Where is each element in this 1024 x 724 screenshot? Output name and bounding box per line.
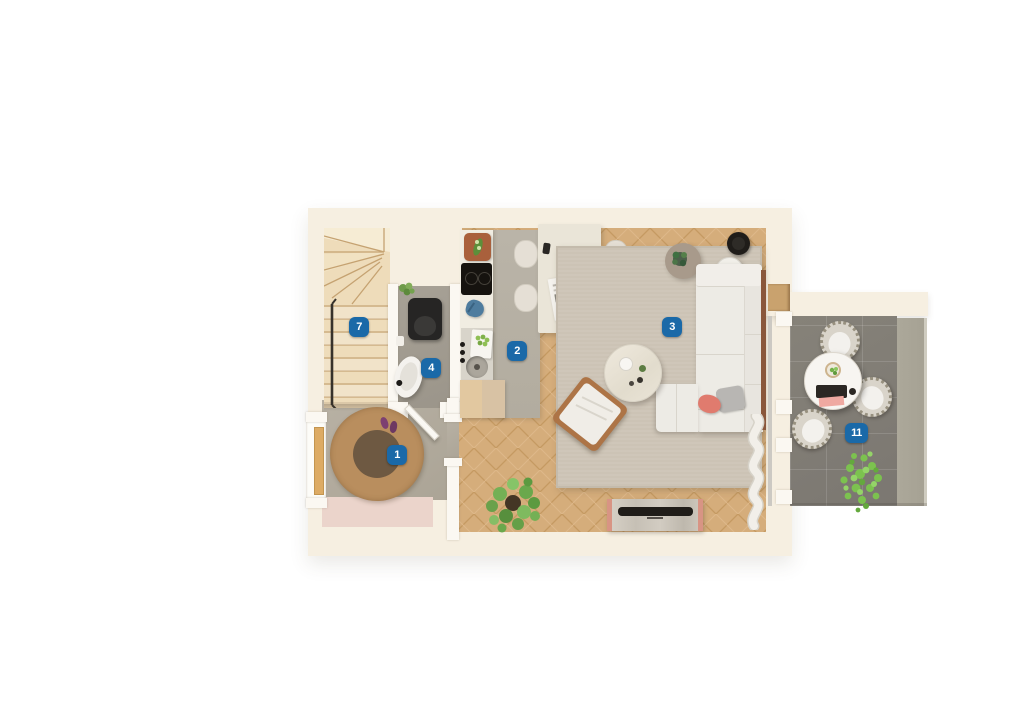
hall-living-doorway: [447, 420, 459, 462]
terrace-napkin: [819, 396, 845, 407]
decor-sprig: [639, 365, 646, 372]
kitchen-faucet-1: [460, 342, 465, 347]
room-badge-staircase: 7: [349, 317, 369, 337]
grapes: [473, 333, 491, 349]
living-doorjamb-bottom: [444, 458, 462, 466]
terrace-railing-right: [924, 318, 927, 506]
balcony-door-frame-3: [776, 438, 792, 452]
sofa-armrest-top: [696, 264, 762, 287]
kitchen-faucet-2: [460, 350, 465, 355]
kitchen-sink-basin: [466, 356, 488, 378]
planter-inner: [732, 237, 745, 250]
room-badge-living-room: 3: [662, 317, 682, 337]
tv-stand: [647, 517, 663, 519]
sofa-wood-trim: [761, 270, 766, 430]
toilet-seat: [414, 316, 436, 336]
terrace-chair-right-seat: [857, 382, 887, 413]
toilet-paper-holder: [396, 336, 404, 346]
burner-right: [478, 272, 491, 285]
terrace-cup: [849, 388, 856, 395]
room-badge-kitchen: 2: [507, 341, 527, 361]
living-plant: [478, 470, 548, 536]
room-badge-terrace: 11: [845, 423, 868, 443]
cabinet-right-half: [482, 380, 505, 418]
balcony-door-frame-1: [776, 312, 792, 326]
window-glass-line: [768, 316, 772, 506]
black-planter: [727, 232, 750, 255]
console-cap-left: [607, 499, 612, 531]
bathroom-plant: [396, 280, 416, 298]
floor-plan-canvas: 1 2 3 4 7 11: [0, 0, 1024, 724]
balcony-door-frame-2: [776, 400, 792, 414]
hall-pink-mat: [322, 497, 433, 527]
sink-basin: [397, 360, 421, 392]
entrance-jamb-top: [306, 412, 327, 422]
terrace-side-strip: [897, 318, 927, 506]
curtain: [744, 414, 768, 530]
towel-fold: [467, 302, 475, 312]
room-badge-bathroom: 4: [421, 358, 441, 378]
coffee-table: [604, 344, 662, 402]
entrance-door: [314, 427, 324, 495]
decor-ball-2: [629, 381, 634, 386]
entrance-jamb-bottom: [306, 498, 327, 508]
cooktop: [461, 263, 492, 295]
wall-niche-shelf: [768, 284, 790, 311]
tv-screen: [618, 507, 693, 516]
hall-living-wall-bottom: [447, 460, 459, 540]
terrace-bowl-greens: [828, 365, 840, 377]
sofa-chaise: [656, 384, 698, 432]
sink-drain: [474, 364, 480, 370]
terrace-table: [804, 352, 862, 410]
burner-left: [465, 272, 478, 285]
dining-chair-top-left: [514, 240, 538, 268]
kitchen-cabinet: [460, 380, 505, 418]
console-cap-right: [698, 499, 703, 531]
terrace-plant: [830, 444, 894, 516]
decor-ball-1: [637, 377, 643, 383]
pouf-plant: [668, 246, 694, 272]
tv-console: [607, 499, 703, 531]
balcony-door-frame-4: [776, 490, 792, 504]
kitchen-faucet-3: [460, 358, 465, 363]
hall-round-rug: [330, 407, 424, 501]
terrace-chair-bottom-left-seat: [798, 415, 829, 447]
candle: [619, 357, 633, 371]
dining-chair-bottom-left: [514, 284, 538, 312]
room-badge-hall: 1: [387, 445, 407, 465]
cucumber: [468, 236, 488, 258]
toilet: [408, 298, 442, 340]
